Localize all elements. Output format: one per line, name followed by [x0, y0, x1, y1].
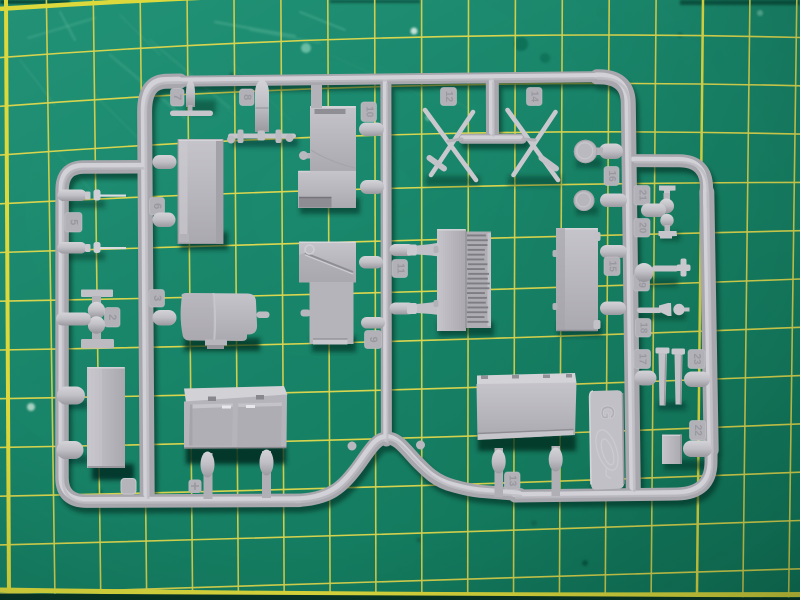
- svg-text:8: 8: [241, 94, 253, 100]
- svg-text:14: 14: [529, 91, 540, 103]
- svg-text:12: 12: [443, 91, 454, 103]
- svg-text:17: 17: [637, 353, 648, 365]
- svg-text:18: 18: [638, 322, 649, 334]
- svg-text:15: 15: [607, 261, 618, 273]
- svg-text:9: 9: [367, 336, 379, 342]
- svg-text:10: 10: [363, 106, 374, 118]
- svg-text:21: 21: [637, 190, 648, 202]
- svg-text:5: 5: [68, 219, 80, 225]
- svg-text:13: 13: [507, 475, 518, 487]
- svg-text:G: G: [596, 405, 617, 420]
- svg-text:23: 23: [691, 353, 702, 365]
- svg-text:16: 16: [606, 170, 617, 182]
- svg-text:3: 3: [151, 295, 163, 301]
- svg-text:2: 2: [106, 314, 118, 320]
- svg-text:6: 6: [151, 203, 163, 209]
- svg-text:22: 22: [692, 425, 703, 437]
- svg-text:20: 20: [637, 222, 648, 234]
- svg-text:7: 7: [171, 94, 183, 100]
- svg-text:11: 11: [394, 263, 405, 274]
